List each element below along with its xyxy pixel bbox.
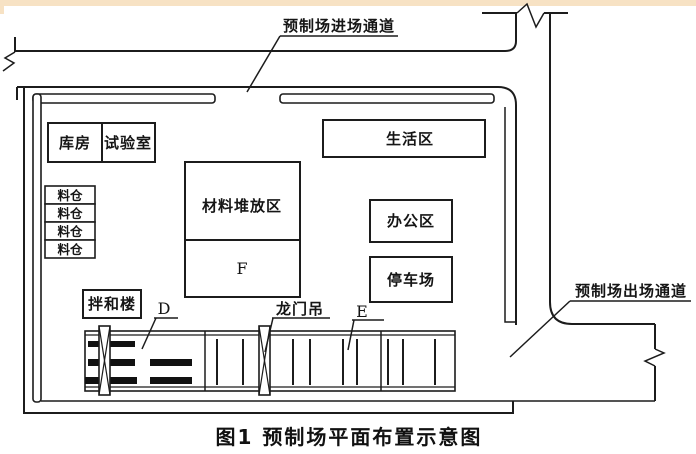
- bin-label-3: 料仓: [57, 224, 83, 239]
- wall-bar-top-right: [280, 94, 494, 103]
- marker-d-label: D: [158, 299, 171, 318]
- bin-label-2: 料仓: [57, 206, 83, 221]
- material-bins: 料仓 料仓 料仓 料仓: [45, 186, 95, 258]
- figure-caption: 图1 预制场平面布置示意图: [216, 425, 483, 449]
- laboratory-label: 试验室: [104, 134, 152, 152]
- mixing-plant-label: 拌和楼: [88, 295, 136, 313]
- warehouse-label: 库房: [59, 134, 91, 152]
- scan-edge-top: [0, 0, 696, 6]
- north-road-right-edge: [550, 13, 655, 324]
- exit-road-leader-line: [510, 301, 570, 357]
- entry-road-label: 预制场进场通道: [283, 17, 395, 35]
- yard-right-outer: [498, 87, 516, 325]
- scan-edge-left: [0, 0, 4, 14]
- material-yard-label: 材料堆放区: [202, 197, 282, 215]
- entry-road: [3, 4, 655, 324]
- bin-label-4: 料仓: [57, 242, 83, 257]
- break-symbol-top: [517, 4, 544, 27]
- material-yard-sub-label: F: [236, 259, 247, 278]
- living-area-label: 生活区: [386, 130, 434, 148]
- exit-road: [645, 324, 664, 401]
- office-area-label: 办公区: [387, 212, 435, 230]
- exit-road-label: 预制场出场通道: [575, 282, 687, 300]
- entry-road-leader-line: [247, 36, 280, 92]
- precast-bed-strip: [85, 326, 455, 395]
- site-plan-diagram: 库房 试验室 料仓 料仓 料仓 料仓 材料堆放区 F 生活区 办公区 停车场 拌…: [0, 0, 696, 454]
- parking-lot-label: 停车场: [387, 271, 435, 289]
- wall-bar-top-left: [33, 94, 215, 103]
- gantry-crane-leg-left: [99, 326, 110, 395]
- marker-e-label: E: [356, 302, 368, 321]
- break-symbol-left: [3, 52, 15, 71]
- break-symbol-right: [645, 349, 664, 366]
- figure-page: 库房 试验室 料仓 料仓 料仓 料仓 材料堆放区 F 生活区 办公区 停车场 拌…: [0, 0, 696, 454]
- bin-label-1: 料仓: [57, 188, 83, 203]
- gantry-crane-label: 龙门吊: [275, 300, 324, 318]
- wall-bar-left: [33, 94, 41, 402]
- entry-road-top-line: [15, 14, 516, 51]
- wall-bar-right: [505, 107, 516, 322]
- buildings: 库房 试验室 料仓 料仓 料仓 料仓 材料堆放区 F 生活区 办公区 停车场 拌…: [45, 120, 485, 318]
